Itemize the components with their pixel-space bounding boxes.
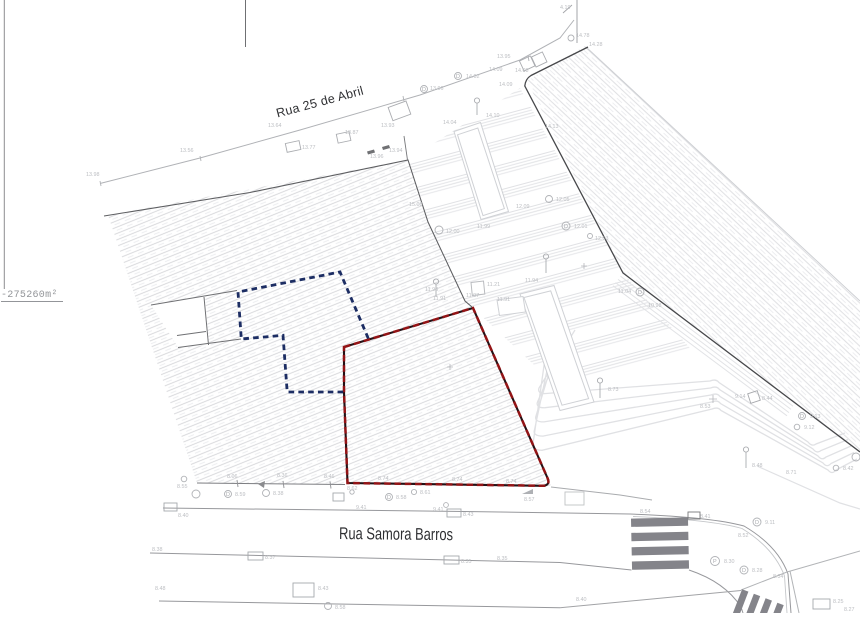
svg-text:8.43: 8.43 (318, 586, 329, 592)
svg-text:8.71: 8.71 (786, 470, 797, 476)
svg-text:8.27: 8.27 (844, 607, 855, 613)
svg-text:8.61: 8.61 (420, 490, 431, 496)
svg-text:D: D (387, 495, 391, 501)
svg-text:12.05: 12.05 (556, 197, 570, 203)
svg-text:11.94: 11.94 (525, 278, 538, 284)
svg-text:13.93: 13.93 (381, 123, 395, 129)
svg-text:8.54: 8.54 (640, 509, 651, 515)
svg-text:8.59: 8.59 (235, 492, 246, 498)
svg-text:13.98: 13.98 (86, 172, 100, 178)
svg-text:8.52: 8.52 (738, 533, 749, 539)
svg-text:13.56: 13.56 (180, 148, 194, 154)
svg-text:8.36: 8.36 (277, 473, 288, 479)
svg-text:8.48: 8.48 (155, 586, 166, 592)
svg-text:13.77: 13.77 (302, 145, 316, 151)
svg-text:14.09: 14.09 (489, 67, 503, 73)
svg-text:Rua Samora Barros: Rua Samora Barros (339, 524, 453, 544)
svg-text:11.93: 11.93 (425, 287, 438, 293)
svg-text:11.91: 11.91 (497, 297, 510, 303)
svg-text:8.74: 8.74 (452, 477, 463, 483)
svg-text:4.19: 4.19 (560, 5, 571, 11)
svg-text:8.37: 8.37 (265, 555, 276, 561)
svg-text:8.46: 8.46 (324, 474, 335, 480)
svg-text:D: D (564, 224, 568, 230)
svg-text:14.08: 14.08 (515, 68, 529, 74)
svg-text:P: P (713, 559, 717, 565)
svg-text:8.06: 8.06 (227, 474, 238, 480)
svg-text:D: D (422, 87, 426, 93)
svg-text:8.74: 8.74 (506, 479, 517, 485)
svg-text:8.25: 8.25 (833, 599, 844, 605)
svg-text:13.94: 13.94 (389, 148, 403, 154)
svg-text:8.35: 8.35 (461, 559, 472, 565)
svg-text:13.64: 13.64 (268, 123, 282, 129)
svg-text:D: D (226, 492, 230, 498)
svg-text:14.02: 14.02 (466, 74, 480, 80)
svg-text:8.74: 8.74 (378, 476, 389, 482)
svg-text:8.34: 8.34 (773, 574, 784, 580)
svg-text:11.21: 11.21 (487, 282, 500, 288)
svg-text:8.53: 8.53 (700, 404, 711, 410)
svg-text:8.62: 8.62 (347, 486, 358, 492)
svg-text:9.11: 9.11 (765, 520, 775, 526)
svg-text:13.96: 13.96 (370, 154, 384, 160)
svg-text:8.57: 8.57 (524, 497, 535, 503)
svg-text:D: D (742, 568, 746, 574)
svg-text:12.09: 12.09 (516, 204, 530, 210)
svg-text:9.14: 9.14 (735, 394, 746, 400)
svg-text:14.09: 14.09 (499, 82, 513, 88)
svg-text:9.41: 9.41 (433, 507, 444, 513)
svg-text:8.35: 8.35 (497, 556, 508, 562)
svg-text:D: D (456, 74, 460, 80)
svg-text:8.44: 8.44 (762, 396, 773, 402)
svg-text:11.91: 11.91 (433, 296, 446, 302)
svg-text:8.48: 8.48 (752, 463, 763, 469)
svg-text:9.41: 9.41 (356, 505, 367, 511)
svg-text:8.38: 8.38 (273, 491, 284, 497)
svg-text:14.78: 14.78 (576, 33, 590, 39)
svg-text:8.55: 8.55 (177, 484, 188, 490)
svg-text:8.38: 8.38 (152, 547, 163, 553)
svg-text:15.08: 15.08 (409, 202, 423, 208)
svg-text:8.28: 8.28 (752, 568, 763, 574)
svg-text:13.87: 13.87 (345, 130, 359, 136)
svg-text:9.13: 9.13 (810, 414, 821, 420)
svg-text:14.28: 14.28 (589, 42, 603, 48)
svg-text:8.42: 8.42 (843, 466, 854, 472)
svg-text:13.96: 13.96 (430, 86, 444, 92)
svg-text:-275260m²: -275260m² (1, 290, 58, 301)
svg-text:8.40: 8.40 (178, 513, 189, 519)
svg-text:8.43: 8.43 (463, 512, 474, 518)
svg-text:8.40: 8.40 (576, 597, 587, 603)
svg-text:8.41: 8.41 (700, 514, 711, 520)
svg-text:8.58: 8.58 (335, 605, 346, 611)
svg-text:D: D (755, 520, 759, 526)
svg-text:D: D (638, 290, 642, 296)
svg-text:11.07: 11.07 (466, 293, 479, 299)
svg-text:8.30: 8.30 (724, 559, 735, 565)
svg-text:11.99: 11.99 (477, 224, 490, 230)
svg-text:12.00: 12.00 (446, 229, 460, 235)
svg-text:8.73: 8.73 (608, 387, 619, 393)
svg-text:14.04: 14.04 (443, 120, 457, 126)
svg-text:11.04: 11.04 (618, 289, 631, 295)
svg-text:D: D (800, 414, 804, 420)
svg-text:12.03: 12.03 (595, 236, 609, 242)
svg-text:12.01: 12.01 (574, 224, 588, 230)
svg-text:8.58: 8.58 (396, 495, 407, 501)
svg-text:14.13: 14.13 (545, 124, 559, 130)
svg-text:9.12: 9.12 (804, 425, 815, 431)
svg-text:13.95: 13.95 (497, 54, 511, 60)
svg-text:10.98: 10.98 (648, 303, 662, 309)
svg-text:14.10: 14.10 (486, 113, 500, 119)
